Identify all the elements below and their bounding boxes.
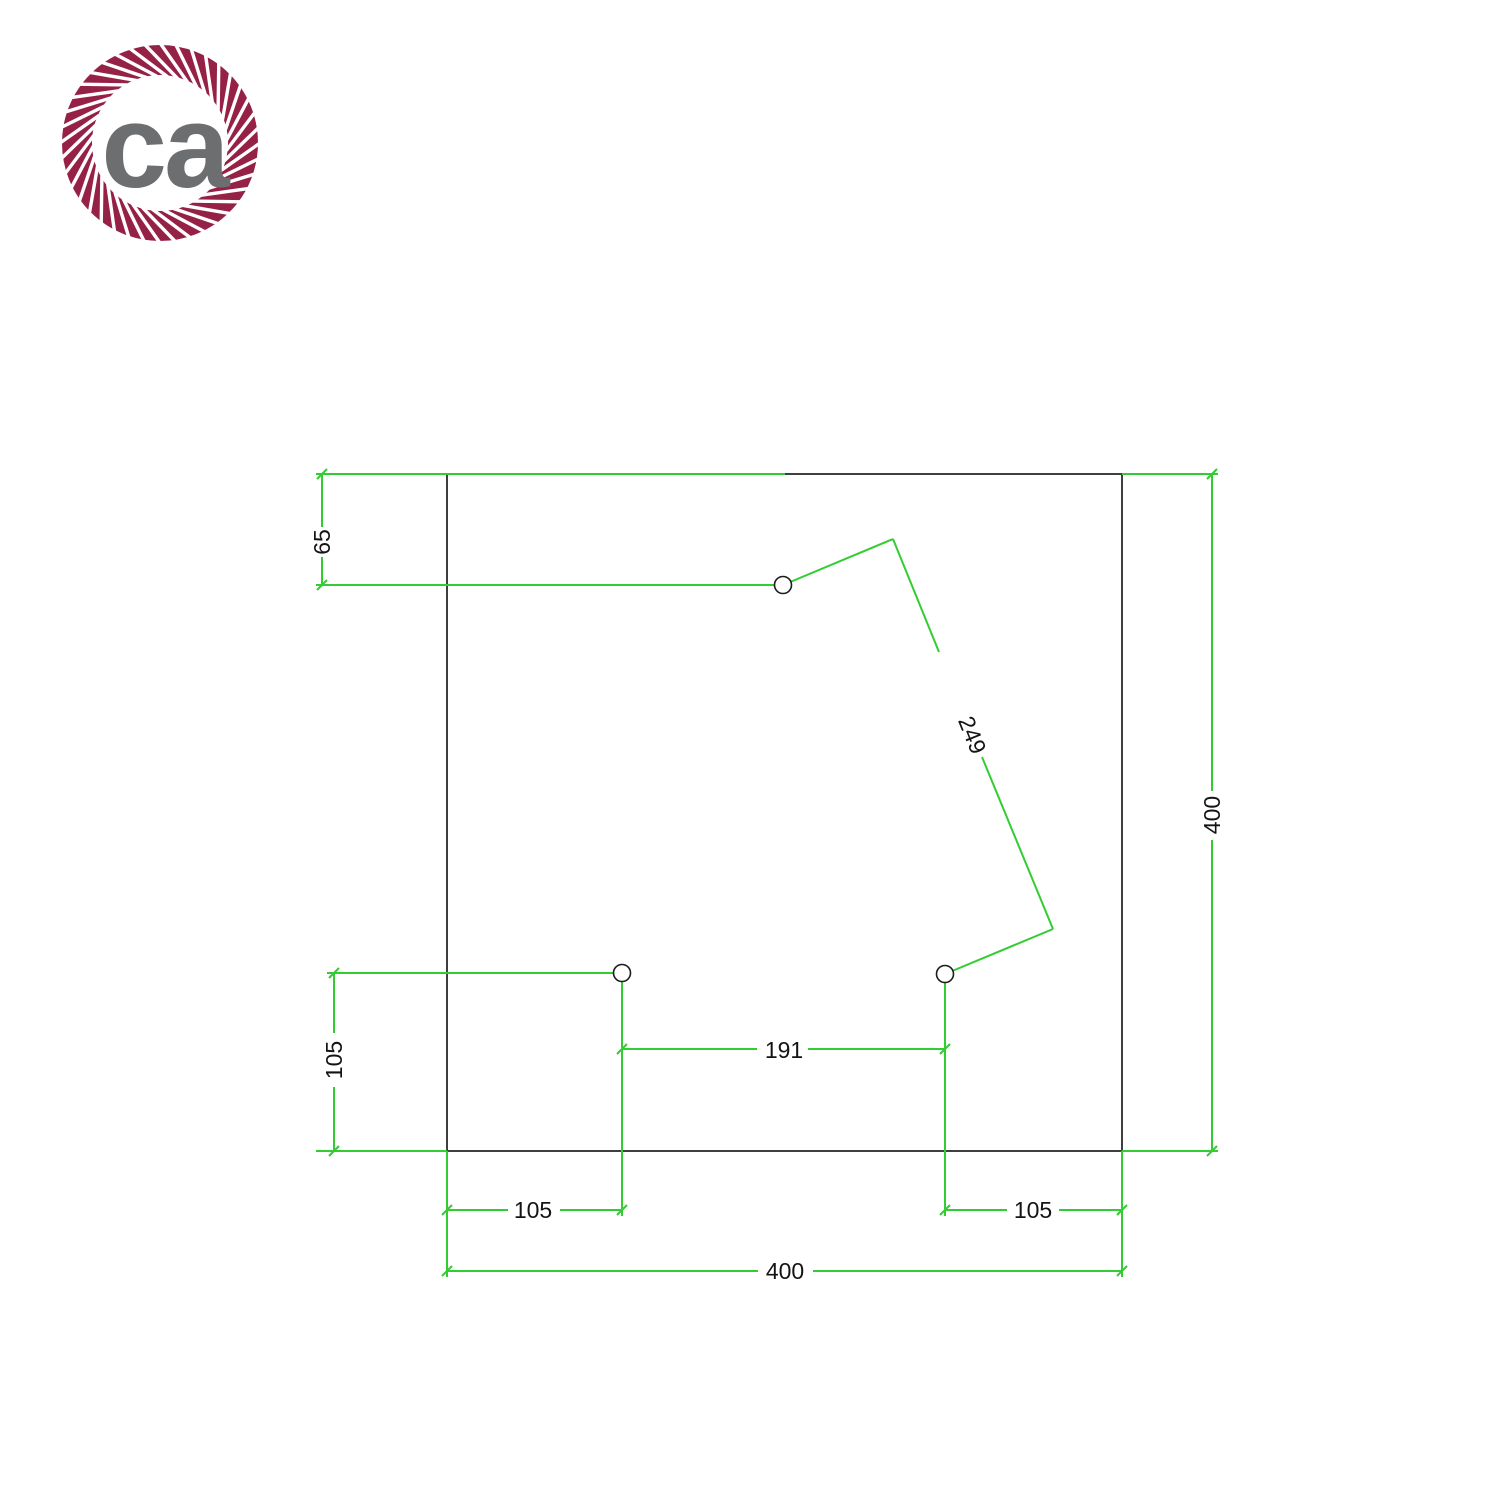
hole-bottom-right (937, 966, 954, 983)
extension-line (783, 539, 893, 585)
dimension-left-hole-vertical-offset: 105 (316, 968, 622, 1156)
dimension-label: 105 (514, 1197, 552, 1223)
dimension-label: 249 (953, 712, 991, 757)
dimension-side-height: 400 (1122, 469, 1225, 1156)
dimension-bottom-left-hole-offset: 105 (442, 1197, 627, 1223)
dimension-label: 400 (766, 1258, 804, 1284)
dimension-label: 65 (309, 529, 335, 555)
dimension-top-hole-offset: 65 (309, 469, 785, 590)
hole-bottom-left (614, 965, 631, 982)
dimension-label: 105 (1014, 1197, 1052, 1223)
dimension-line (982, 757, 1053, 929)
dimension-diagonal-hole-spacing: 249 (783, 539, 1053, 974)
product-dimension-page: ca 65 249 (0, 0, 1500, 1500)
hole-top (775, 577, 792, 594)
dimension-line (893, 539, 939, 652)
dimension-bottom-right-hole-offset: 105 (940, 1197, 1127, 1223)
dimension-label: 191 (765, 1037, 803, 1063)
dimension-label: 105 (321, 1041, 347, 1079)
dimension-label: 400 (1199, 796, 1225, 834)
extension-line (945, 929, 1053, 974)
technical-drawing: 65 249 400 105 (0, 0, 1500, 1500)
dimension-bottom-holes-spacing: 191 (617, 1037, 950, 1063)
